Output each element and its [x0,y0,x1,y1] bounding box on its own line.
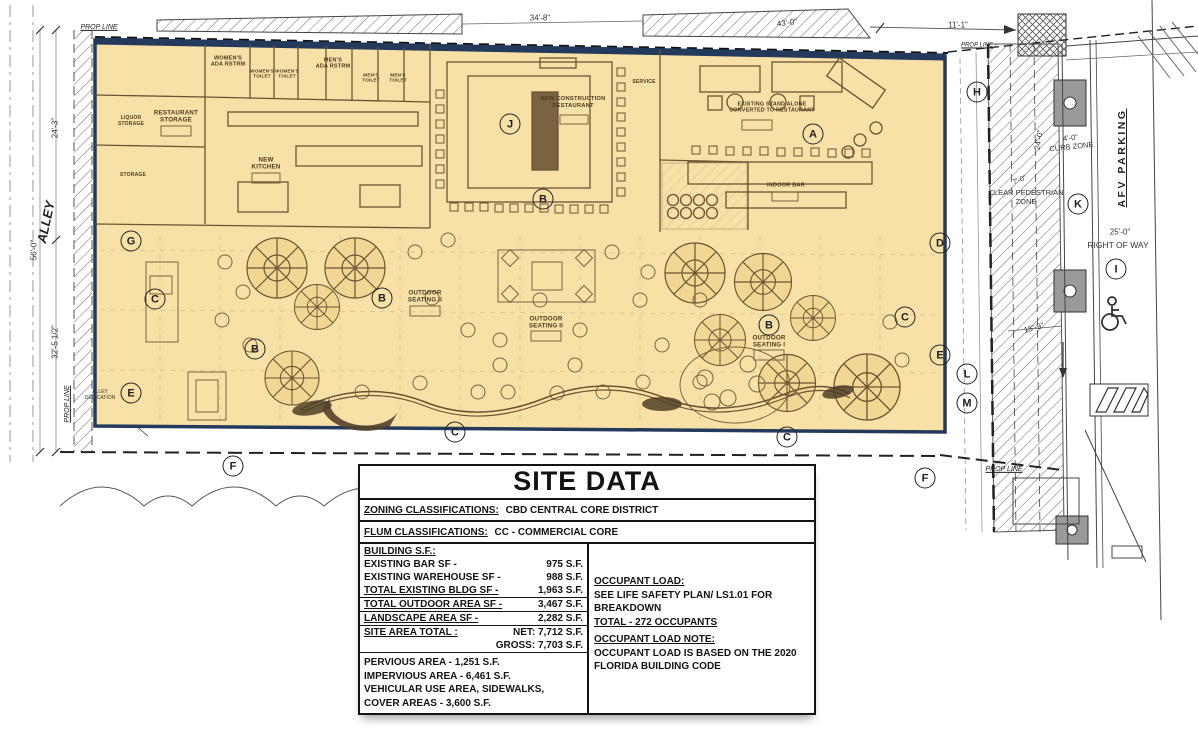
room-label: RESTAURANT STORAGE [154,110,198,125]
building-sf-row: EXISTING BAR SF - 975 S.F. [360,558,587,571]
keynote-bubble: J [500,114,521,135]
room-label: INDOOR BAR [767,183,805,190]
building-sf-row: EXISTING WAREHOUSE SF - 988 S.F. [360,571,587,584]
keynote-bubble: K [1068,194,1089,215]
keynote-bubble: B [533,189,554,210]
sf-value: 975 S.F. [546,558,583,571]
room-label: NEW KITCHEN [252,157,281,172]
room-label: WOMEN'S TOILET [275,69,299,80]
keynote-bubble: B [245,339,266,360]
zoning-label: ZONING CLASSIFICATIONS: [364,505,499,516]
keynote-bubble: C [145,289,166,310]
sf-label: TOTAL EXISTING BLDG SF - [364,584,498,597]
flum-value: CC - COMMERCIAL CORE [494,527,618,538]
occupant-line: SEE LIFE SAFETY PLAN/ LS1.01 FOR [594,589,810,603]
site-area-total-row: SITE AREA TOTAL : NET: 7,712 S.F. GROSS:… [360,626,587,653]
keynote-bubble: H [967,82,988,103]
dimension-label: 56'-0" [29,240,38,260]
keynote-bubble: M [957,393,978,414]
room-label: WOMEN'S TOILET [250,69,274,80]
room-label: STORAGE [120,173,146,179]
room-label: NEW CONSTRUCTION RESTAURANT [540,96,605,110]
building-sf-row: BUILDING S.F.: [360,545,587,558]
sf-label: EXISTING BAR SF - [364,558,457,571]
occupant-note-heading: OCCUPANT LOAD NOTE: [594,633,810,647]
dimension-label: 24'-3" [50,118,59,138]
site-area-label: SITE AREA TOTAL : [364,626,458,652]
site-data-table: SITE DATA ZONING CLASSIFICATIONS: CBD CE… [358,464,816,715]
room-label: OUTDOOR SEATING II [529,316,563,331]
sf-label: BUILDING S.F.: [364,545,436,558]
occupant-line: BREAKDOWN [594,602,810,616]
room-label: MEN'S TOILET [362,73,379,84]
room-label: WOMEN'S ADA RSTRM [211,56,246,69]
building-sf-rows: BUILDING S.F.: EXISTING BAR SF - 975 S.F… [360,545,587,626]
area-line: COVER AREAS - 3,600 S.F. [360,697,587,711]
sf-label: TOTAL OUTDOOR AREA SF - [364,598,502,611]
site-data-title: SITE DATA [360,466,814,500]
building-sf-row: TOTAL OUTDOOR AREA SF - 3,467 S.F. [360,598,587,612]
area-line: PERVIOUS AREA - 1,251 S.F. [360,656,587,670]
dimension-label: 34'-8" [530,13,550,22]
building-sf-row: LANDSCAPE AREA SF - 2,282 S.F. [360,612,587,626]
keynote-bubble: C [777,427,798,448]
room-label: MEN'S ADA RSTRM [316,58,351,71]
room-label: LIQUOR STORAGE [118,116,144,128]
afv-parking-label: AFV PARKING [1116,108,1128,207]
site-data-body: BUILDING S.F.: EXISTING BAR SF - 975 S.F… [360,544,814,713]
keynote-bubble: A [803,124,824,145]
dimension-label: 25'-0" [1110,227,1130,236]
site-area-net: NET: 7,712 S.F. [496,626,583,639]
area-line: VEHICULAR USE AREA, SIDEWALKS, [360,683,587,697]
keynote-bubble: D [930,233,951,254]
building-sf-row: TOTAL EXISTING BLDG SF - 1,963 S.F. [360,584,587,598]
dimension-label: CLEAR PEDESTRIAN ZONE [988,189,1063,207]
sf-value: 3,467 S.F. [538,598,583,611]
sf-value: 1,963 S.F. [538,584,583,597]
keynote-bubble: B [759,315,780,336]
dimension-label: 11'-1" [948,20,968,29]
building-shell [95,40,945,432]
room-label: SERVICE [632,80,655,86]
dimension-label: ALLEY DEDICATION [85,390,115,402]
site-area-gross: GROSS: 7,703 S.F. [496,639,583,652]
room-label: OUTDOOR SEATING II [408,290,442,305]
occupant-note-line: FLORIDA BUILDING CODE [594,660,810,674]
sf-label: LANDSCAPE AREA SF - [364,612,478,625]
dimension-label: RIGHT OF WAY [1087,240,1148,250]
area-breakdown-rows: PERVIOUS AREA - 1,251 S.F.IMPERVIOUS ARE… [360,656,587,710]
occupant-load-lines: SEE LIFE SAFETY PLAN/ LS1.01 FORBREAKDOW… [594,589,810,616]
room-label: MEN'S TOILET [389,73,406,84]
keynote-bubble: F [223,456,244,477]
site-data-left-column: BUILDING S.F.: EXISTING BAR SF - 975 S.F… [360,544,589,713]
keynote-bubble: C [895,307,916,328]
keynote-bubble: C [445,422,466,443]
dimension-label: 32'-5 1/2" [50,325,59,359]
site-data-right-column: OCCUPANT LOAD: SEE LIFE SAFETY PLAN/ LS1… [589,544,814,713]
flum-label: FLUM CLASSIFICATIONS: [364,527,488,538]
room-label: EXISTING STAND ALONE CONVERTED TO RESTAU… [729,102,815,115]
room-label: OUTDOOR SEATING I [752,335,785,350]
keynote-bubble: I [1106,259,1127,280]
dimension-label: PROP LINE [64,385,72,422]
dimension-label: PROP LINE [985,466,1022,474]
sf-label: EXISTING WAREHOUSE SF - [364,571,501,584]
zoning-value: CBD CENTRAL CORE DISTRICT [506,505,659,516]
occupant-note-line: OCCUPANT LOAD IS BASED ON THE 2020 [594,647,810,661]
zoning-row: ZONING CLASSIFICATIONS: CBD CENTRAL CORE… [360,500,814,522]
dimension-label: PROP LINE [80,24,117,32]
wheelchair-icon [1102,297,1126,330]
flum-row: FLUM CLASSIFICATIONS: CC - COMMERCIAL CO… [360,522,814,544]
area-line: IMPERVIOUS AREA - 6,461 S.F. [360,670,587,684]
keynote-bubble: E [930,345,951,366]
dimension-label: PROP LINE [961,42,993,49]
occupant-total: TOTAL - 272 OCCUPANTS [594,616,810,630]
keynote-bubble: E [121,383,142,404]
occupant-note-lines: OCCUPANT LOAD IS BASED ON THE 2020FLORID… [594,647,810,674]
occupant-load-heading: OCCUPANT LOAD: [594,575,810,589]
keynote-bubble: G [121,231,142,252]
site-plan-sheet: WOMEN'S ADA RSTRMWOMEN'S TOILETWOMEN'S T… [0,0,1198,744]
keynote-bubble: F [915,468,936,489]
sf-value: 988 S.F. [546,571,583,584]
keynote-bubble: B [372,288,393,309]
sf-value: 2,282 S.F. [538,612,583,625]
keynote-bubble: L [957,364,978,385]
